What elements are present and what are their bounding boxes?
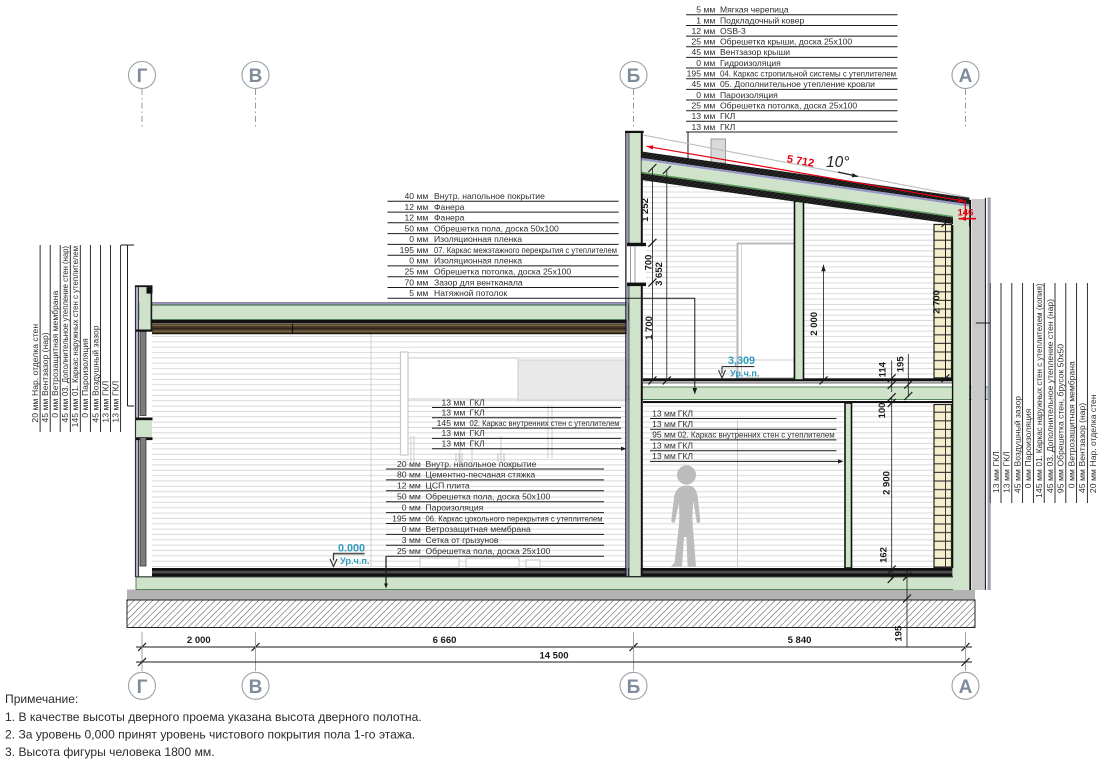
svg-text:мм: мм (1066, 469, 1076, 481)
svg-text:мм: мм (417, 245, 429, 255)
svg-text:12: 12 (691, 26, 701, 36)
svg-text:А: А (959, 677, 973, 698)
svg-text:02. Каркас внутренних стен с у: 02. Каркас внутренних стен с утеплителем (678, 430, 835, 440)
svg-text:45: 45 (1045, 483, 1055, 493)
svg-text:мм: мм (80, 399, 90, 411)
svg-text:Пароизоляция: Пароизоляция (426, 502, 484, 512)
svg-text:Вентзазор (нар): Вентзазор (нар) (1077, 403, 1087, 467)
svg-text:13: 13 (1002, 483, 1012, 493)
svg-text:мм: мм (704, 122, 716, 132)
svg-text:25: 25 (691, 37, 701, 47)
svg-text:13: 13 (441, 397, 451, 407)
svg-text:мм: мм (1088, 469, 1098, 481)
svg-text:мм: мм (409, 524, 421, 534)
svg-text:Обрешетка потолка, доска 25x10: Обрешетка потолка, доска 25x100 (434, 267, 571, 277)
svg-text:01. Каркас наружных стен с уте: 01. Каркас наружных стен с утеплителем (… (1034, 283, 1044, 466)
svg-text:50: 50 (404, 223, 414, 233)
svg-text:Вентзазор (нар): Вентзазор (нар) (40, 332, 50, 396)
svg-text:мм: мм (417, 267, 429, 277)
svg-text:5 840: 5 840 (788, 635, 812, 646)
svg-text:мм: мм (417, 288, 429, 298)
svg-text:195: 195 (392, 513, 407, 523)
svg-text:мм: мм (30, 399, 40, 411)
svg-text:195: 195 (687, 69, 702, 79)
svg-text:195: 195 (893, 625, 904, 642)
svg-text:мм: мм (664, 408, 676, 418)
svg-text:25: 25 (404, 267, 414, 277)
svg-text:12: 12 (397, 481, 407, 491)
svg-text:ГКЛ: ГКЛ (678, 441, 693, 451)
svg-text:13: 13 (100, 413, 110, 423)
svg-text:13: 13 (652, 441, 662, 451)
svg-text:мм: мм (664, 451, 676, 461)
svg-text:Ур.ч.п.: Ур.ч.п. (730, 369, 760, 379)
svg-text:мм: мм (454, 397, 466, 407)
svg-text:45: 45 (60, 413, 70, 423)
svg-text:80: 80 (397, 470, 407, 480)
svg-text:0.000: 0.000 (338, 543, 365, 555)
svg-text:Обрешетка стен, брусок 50x50: Обрешетка стен, брусок 50x50 (1056, 344, 1066, 467)
svg-text:70: 70 (404, 277, 414, 287)
svg-text:ГКЛ: ГКЛ (110, 381, 120, 396)
svg-text:45: 45 (691, 47, 701, 57)
svg-text:01. Каркас наружных стен с уте: 01. Каркас наружных стен с утеплителем (70, 246, 80, 396)
svg-text:Г: Г (137, 677, 148, 698)
svg-text:13: 13 (691, 122, 701, 132)
svg-text:40: 40 (404, 191, 414, 201)
svg-text:195: 195 (400, 245, 415, 255)
svg-text:Обрешетка крыши, доска 25x100: Обрешетка крыши, доска 25x100 (720, 37, 852, 47)
svg-text:Вентзазор крыши: Вентзазор крыши (720, 47, 790, 57)
svg-text:145: 145 (1034, 483, 1044, 498)
svg-text:А: А (959, 66, 973, 87)
svg-text:мм: мм (704, 5, 716, 15)
svg-text:6 660: 6 660 (433, 635, 457, 646)
svg-text:25: 25 (691, 101, 701, 111)
svg-text:мм: мм (704, 90, 716, 100)
svg-text:03. Дополнительное утепление с: 03. Дополнительное утепление стен (нар) (60, 246, 70, 396)
svg-text:Пароизоляция: Пароизоляция (1023, 408, 1033, 466)
svg-text:мм: мм (664, 419, 676, 429)
svg-text:0: 0 (409, 256, 414, 266)
svg-text:95: 95 (652, 430, 662, 440)
svg-text:2 000: 2 000 (809, 312, 820, 336)
svg-text:0: 0 (50, 413, 60, 418)
svg-text:ГКЛ: ГКЛ (991, 451, 1001, 466)
svg-text:Мягкая черепица: Мягкая черепица (720, 5, 789, 15)
svg-text:13: 13 (110, 413, 120, 423)
svg-text:мм: мм (704, 101, 716, 111)
svg-text:0: 0 (402, 502, 407, 512)
svg-text:мм: мм (1045, 469, 1055, 481)
svg-text:Внутр. напольное покрытие: Внутр. напольное покрытие (426, 459, 537, 469)
svg-text:Гидроизоляция: Гидроизоляция (720, 58, 781, 68)
svg-text:мм: мм (409, 481, 421, 491)
svg-text:12: 12 (404, 213, 414, 223)
svg-text:Г: Г (137, 66, 148, 87)
svg-text:45: 45 (1077, 483, 1087, 493)
svg-text:Обрешетка пола, доска 50x100: Обрешетка пола, доска 50x100 (434, 223, 559, 233)
svg-text:В: В (249, 66, 263, 87)
svg-text:мм: мм (664, 441, 676, 451)
svg-text:мм: мм (1012, 469, 1022, 481)
svg-text:мм: мм (991, 469, 1001, 481)
svg-text:мм: мм (417, 234, 429, 244)
svg-text:45: 45 (1012, 483, 1022, 493)
svg-text:2 900: 2 900 (881, 471, 892, 495)
svg-text:13: 13 (991, 483, 1001, 493)
svg-text:мм: мм (417, 277, 429, 287)
svg-text:45: 45 (40, 413, 50, 423)
svg-text:1 700: 1 700 (644, 316, 655, 340)
svg-text:ГКЛ: ГКЛ (470, 397, 485, 407)
svg-text:1: 1 (696, 15, 701, 25)
svg-text:Сетка от грызунов: Сетка от грызунов (426, 535, 499, 545)
svg-text:мм: мм (40, 399, 50, 411)
svg-text:Б: Б (627, 677, 641, 698)
svg-text:ГКЛ: ГКЛ (720, 111, 735, 121)
svg-text:06. Каркас цокольного перекрыт: 06. Каркас цокольного перекрытия с утепл… (426, 513, 603, 523)
svg-text:0: 0 (696, 90, 701, 100)
svg-text:мм: мм (704, 26, 716, 36)
svg-text:145: 145 (70, 413, 80, 428)
svg-text:12: 12 (404, 202, 414, 212)
svg-text:Обрешетка пола, доска 25x100: Обрешетка пола, доска 25x100 (426, 546, 551, 556)
svg-text:05. Дополнительное утепление к: 05. Дополнительное утепление кровли (720, 79, 875, 89)
svg-text:Ур.ч.п.: Ур.ч.п. (340, 556, 370, 566)
svg-text:ГКЛ: ГКЛ (1002, 451, 1012, 466)
svg-text:20: 20 (397, 459, 407, 469)
svg-text:3,309: 3,309 (728, 355, 755, 367)
svg-text:мм: мм (704, 111, 716, 121)
svg-text:мм: мм (704, 15, 716, 25)
svg-text:13: 13 (441, 428, 451, 438)
svg-text:Обрешетка потолка, доска 25x10: Обрешетка потолка, доска 25x100 (720, 101, 857, 111)
svg-text:OSB-3: OSB-3 (720, 26, 746, 36)
svg-text:100: 100 (877, 403, 888, 419)
svg-text:145: 145 (437, 418, 452, 428)
svg-text:мм: мм (100, 399, 110, 411)
svg-text:Фанера: Фанера (434, 202, 465, 212)
svg-text:мм: мм (60, 399, 70, 411)
svg-text:13: 13 (652, 451, 662, 461)
svg-text:мм: мм (417, 256, 429, 266)
svg-text:1 252: 1 252 (640, 198, 651, 222)
svg-text:04. Каркас стропильной системы: 04. Каркас стропильной системы с утеплит… (720, 69, 896, 79)
svg-text:мм: мм (409, 513, 421, 523)
svg-text:Изоляционная пленка: Изоляционная пленка (434, 234, 522, 244)
svg-text:мм: мм (90, 399, 100, 411)
svg-text:0: 0 (1066, 483, 1076, 488)
svg-text:114: 114 (878, 361, 889, 377)
svg-text:3 652: 3 652 (654, 262, 665, 286)
svg-text:95: 95 (1056, 483, 1066, 493)
svg-text:0: 0 (402, 524, 407, 534)
svg-text:5: 5 (696, 5, 701, 15)
svg-text:мм: мм (409, 535, 421, 545)
svg-text:мм: мм (409, 502, 421, 512)
svg-text:2 700: 2 700 (932, 290, 943, 314)
svg-text:мм: мм (454, 428, 466, 438)
svg-text:мм: мм (1056, 469, 1066, 481)
svg-text:Пароизоляция: Пароизоляция (720, 90, 778, 100)
svg-text:ГКЛ: ГКЛ (678, 451, 693, 461)
svg-text:162: 162 (878, 547, 889, 563)
svg-text:13: 13 (441, 408, 451, 418)
svg-text:мм: мм (704, 69, 716, 79)
svg-text:2 000: 2 000 (187, 635, 211, 646)
svg-text:В: В (249, 677, 263, 698)
svg-text:Зазор для вентканала: Зазор для вентканала (434, 277, 523, 287)
svg-text:мм: мм (704, 37, 716, 47)
svg-text:Нар. отделка стен: Нар. отделка стен (30, 324, 40, 396)
svg-text:мм: мм (454, 418, 466, 428)
svg-text:Примечание:: Примечание: (5, 692, 78, 706)
svg-text:25: 25 (397, 546, 407, 556)
svg-text:ГКЛ: ГКЛ (470, 428, 485, 438)
svg-text:мм: мм (704, 79, 716, 89)
svg-text:мм: мм (409, 459, 421, 469)
svg-text:2. За уровень 0,000 принят уро: 2. За уровень 0,000 принят уровень чисто… (5, 728, 415, 742)
svg-text:мм: мм (417, 213, 429, 223)
svg-text:Ветрозащитная мембрана: Ветрозащитная мембрана (1066, 361, 1076, 466)
svg-text:мм: мм (417, 202, 429, 212)
svg-text:02. Каркас внутренних стен с у: 02. Каркас внутренних стен с утеплителем (470, 418, 620, 428)
svg-text:700: 700 (644, 255, 655, 271)
svg-text:Ветрозащитная мембрана: Ветрозащитная мембрана (426, 524, 531, 534)
svg-text:Внутр. напольное покрытие: Внутр. напольное покрытие (434, 191, 545, 201)
svg-text:мм: мм (70, 399, 80, 411)
svg-text:мм: мм (409, 546, 421, 556)
svg-text:мм: мм (409, 470, 421, 480)
svg-text:Подкладочный ковер: Подкладочный ковер (720, 15, 805, 25)
svg-text:20: 20 (1088, 483, 1098, 493)
svg-text:Нар. отделка стен: Нар. отделка стен (1088, 394, 1098, 466)
svg-text:мм: мм (409, 492, 421, 502)
svg-text:10°: 10° (826, 154, 849, 171)
svg-text:мм: мм (1034, 469, 1044, 481)
svg-text:13: 13 (441, 439, 451, 449)
svg-text:13: 13 (691, 111, 701, 121)
svg-text:3: 3 (402, 535, 407, 545)
svg-text:ГКЛ: ГКЛ (100, 381, 110, 396)
svg-text:0: 0 (409, 234, 414, 244)
svg-text:0: 0 (1023, 483, 1033, 488)
svg-text:Цементно-песчаная стяжка: Цементно-песчаная стяжка (426, 470, 536, 480)
svg-text:Фанера: Фанера (434, 213, 465, 223)
svg-text:мм: мм (1002, 469, 1012, 481)
svg-text:мм: мм (454, 439, 466, 449)
svg-text:50: 50 (397, 492, 407, 502)
svg-text:14 500: 14 500 (539, 651, 568, 662)
svg-text:Обрешетка пола, доска 50x100: Обрешетка пола, доска 50x100 (426, 492, 551, 502)
svg-text:20: 20 (30, 413, 40, 423)
svg-text:3. Высота фигуры человека 1800: 3. Высота фигуры человека 1800 мм. (5, 745, 215, 759)
svg-text:Б: Б (627, 66, 641, 87)
svg-text:ГКЛ: ГКЛ (470, 439, 485, 449)
svg-text:13: 13 (652, 408, 662, 418)
svg-text:Натяжной потолок: Натяжной потолок (434, 288, 507, 298)
svg-text:07. Каркас межэтажного перекры: 07. Каркас межэтажного перекрытия с утеп… (434, 245, 617, 255)
svg-text:мм: мм (704, 47, 716, 57)
svg-text:Воздушный зазор: Воздушный зазор (1012, 396, 1022, 467)
svg-text:мм: мм (704, 58, 716, 68)
svg-text:146: 146 (958, 208, 974, 219)
svg-text:5: 5 (409, 288, 414, 298)
svg-text:мм: мм (664, 430, 676, 440)
svg-text:03. Дополнительное утепление с: 03. Дополнительное утепление стен (нар) (1045, 299, 1055, 467)
svg-text:45: 45 (691, 79, 701, 89)
svg-text:мм: мм (110, 399, 120, 411)
svg-text:мм: мм (50, 399, 60, 411)
svg-text:Изоляционная пленка: Изоляционная пленка (434, 256, 522, 266)
svg-text:ГКЛ: ГКЛ (470, 408, 485, 418)
svg-text:Пароизоляция: Пароизоляция (80, 338, 90, 396)
svg-text:1. В качестве высоты дверного: 1. В качестве высоты дверного проема ука… (5, 710, 422, 724)
svg-text:мм: мм (1077, 469, 1087, 481)
svg-text:0: 0 (696, 58, 701, 68)
svg-text:0: 0 (80, 413, 90, 418)
svg-text:мм: мм (454, 408, 466, 418)
svg-text:ЦСП плита: ЦСП плита (426, 481, 470, 491)
svg-text:Воздушный зазор: Воздушный зазор (90, 325, 100, 396)
svg-text:ГКЛ: ГКЛ (678, 408, 693, 418)
svg-text:45: 45 (90, 413, 100, 423)
svg-text:Ветрозащитная мембрана: Ветрозащитная мембрана (50, 291, 60, 396)
svg-text:13: 13 (652, 419, 662, 429)
svg-text:ГКЛ: ГКЛ (678, 419, 693, 429)
svg-text:мм: мм (417, 223, 429, 233)
svg-text:мм: мм (417, 191, 429, 201)
svg-text:195: 195 (895, 356, 906, 373)
svg-text:ГКЛ: ГКЛ (720, 122, 735, 132)
svg-text:мм: мм (1023, 469, 1033, 481)
